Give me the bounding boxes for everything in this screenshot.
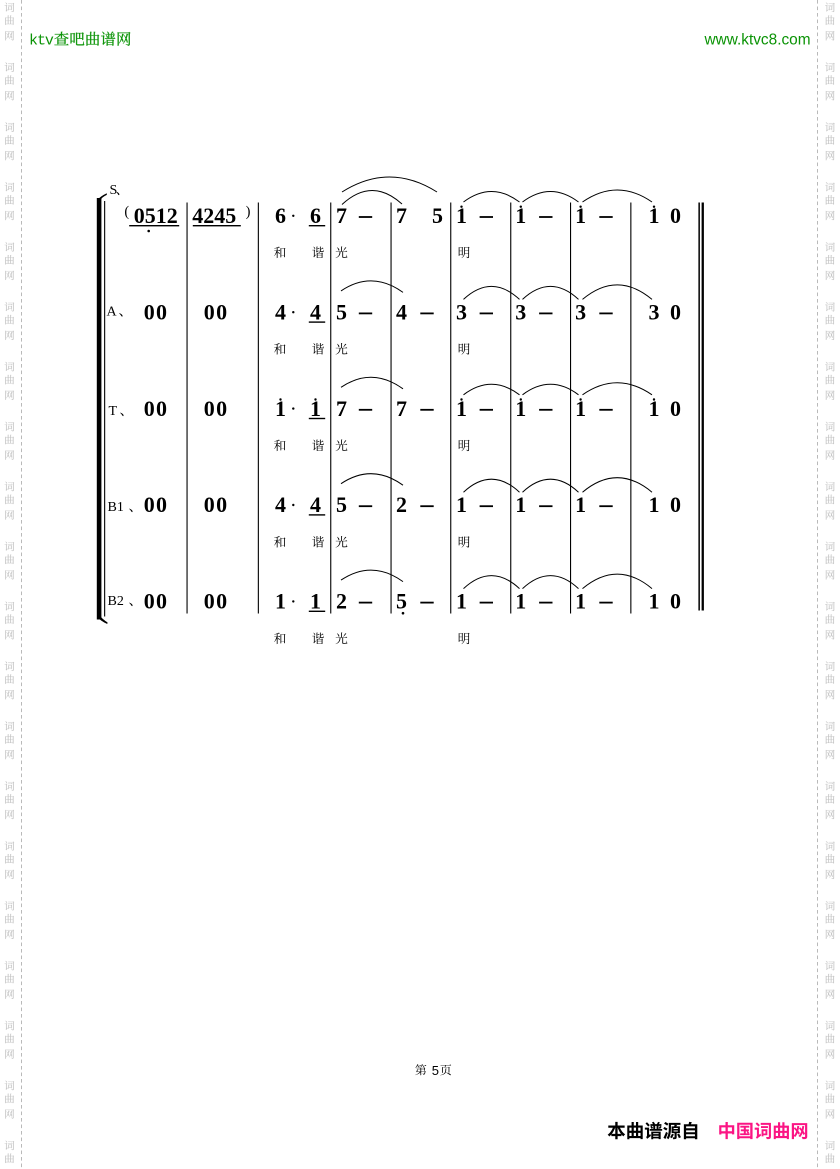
svg-text:3: 3 <box>456 299 467 324</box>
svg-text:0: 0 <box>144 299 155 324</box>
svg-text:1: 1 <box>649 492 660 517</box>
svg-text:5: 5 <box>432 1063 439 1078</box>
svg-text:0: 0 <box>156 396 167 421</box>
svg-text:0: 0 <box>144 492 155 517</box>
svg-text:S: S <box>110 183 118 198</box>
svg-text:2: 2 <box>396 492 407 517</box>
svg-text:7: 7 <box>396 203 407 228</box>
svg-text:7: 7 <box>336 396 347 421</box>
svg-text:2: 2 <box>336 589 347 614</box>
svg-text:0: 0 <box>670 396 681 421</box>
svg-text:0: 0 <box>204 589 215 614</box>
svg-text:3: 3 <box>515 299 526 324</box>
svg-text:0: 0 <box>204 299 215 324</box>
svg-text:(: ( <box>124 204 129 220</box>
svg-text:4: 4 <box>275 299 286 324</box>
svg-text:1: 1 <box>456 589 467 614</box>
svg-text:1: 1 <box>515 589 526 614</box>
svg-text:B2: B2 <box>108 594 124 609</box>
svg-text:0: 0 <box>156 589 167 614</box>
svg-text:ktv: ktv <box>29 33 54 50</box>
svg-text:1: 1 <box>456 492 467 517</box>
svg-text:4: 4 <box>310 492 321 517</box>
svg-text:0512: 0512 <box>134 203 178 228</box>
svg-text:): ) <box>246 204 251 220</box>
svg-text:7: 7 <box>336 203 347 228</box>
svg-text:0: 0 <box>204 492 215 517</box>
svg-text:6: 6 <box>310 203 321 228</box>
svg-text:1: 1 <box>275 589 286 614</box>
svg-text:6: 6 <box>275 203 286 228</box>
svg-text:B1: B1 <box>108 500 124 515</box>
svg-text:4: 4 <box>275 492 286 517</box>
svg-text:5: 5 <box>336 299 347 324</box>
svg-text:0: 0 <box>670 492 681 517</box>
svg-text:1: 1 <box>649 589 660 614</box>
svg-text:T: T <box>109 404 118 419</box>
svg-text:3: 3 <box>649 299 660 324</box>
svg-text:0: 0 <box>670 589 681 614</box>
svg-text:4: 4 <box>310 299 321 324</box>
svg-text:3: 3 <box>575 299 586 324</box>
svg-text:5: 5 <box>396 589 407 614</box>
svg-text:7: 7 <box>396 396 407 421</box>
svg-text:0: 0 <box>156 492 167 517</box>
svg-text:5: 5 <box>336 492 347 517</box>
svg-text:0: 0 <box>144 589 155 614</box>
svg-text:1: 1 <box>575 492 586 517</box>
svg-text:0: 0 <box>216 396 227 421</box>
svg-text:4: 4 <box>396 299 407 324</box>
svg-text:0: 0 <box>156 299 167 324</box>
svg-text:0: 0 <box>216 299 227 324</box>
svg-text:0: 0 <box>216 492 227 517</box>
svg-text:A: A <box>107 305 118 320</box>
svg-text:0: 0 <box>204 396 215 421</box>
svg-text:1: 1 <box>515 492 526 517</box>
svg-text:1: 1 <box>575 589 586 614</box>
svg-text:1: 1 <box>310 589 321 614</box>
svg-text:0: 0 <box>670 299 681 324</box>
svg-text:0: 0 <box>216 589 227 614</box>
svg-text:www.ktvc8.com: www.ktvc8.com <box>704 32 811 49</box>
svg-text:4245: 4245 <box>192 203 236 228</box>
svg-text:0: 0 <box>144 396 155 421</box>
svg-text:0: 0 <box>670 203 681 228</box>
svg-text:5: 5 <box>432 203 443 228</box>
